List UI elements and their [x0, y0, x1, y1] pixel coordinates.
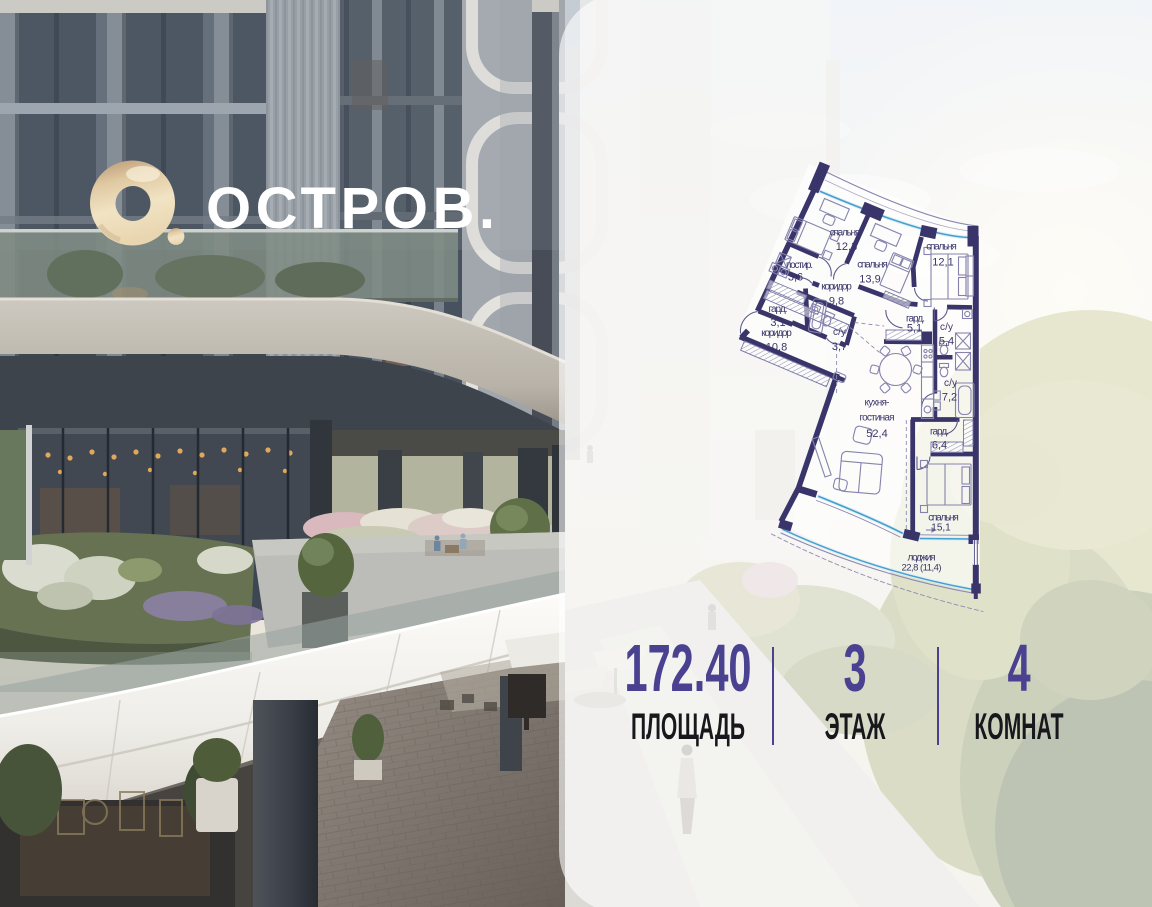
- svg-text:с/у: с/у: [940, 322, 953, 333]
- svg-text:гард.: гард.: [930, 427, 949, 438]
- svg-text:52,4: 52,4: [866, 428, 887, 440]
- svg-text:9,8: 9,8: [829, 296, 844, 308]
- svg-text:гостиная: гостиная: [860, 413, 895, 424]
- svg-text:3,6: 3,6: [788, 272, 803, 284]
- svg-text:10,8: 10,8: [766, 342, 787, 354]
- svg-text:7,2: 7,2: [942, 392, 957, 404]
- svg-text:22,8 (11,4): 22,8 (11,4): [902, 563, 942, 574]
- svg-text:3,7: 3,7: [832, 341, 847, 353]
- svg-text:спальня: спальня: [830, 228, 861, 239]
- svg-text:13,9: 13,9: [859, 274, 880, 286]
- svg-text:спальня: спальня: [857, 260, 888, 271]
- svg-text:6,4: 6,4: [932, 440, 947, 452]
- svg-text:12,1: 12,1: [932, 257, 953, 269]
- svg-text:5,1: 5,1: [907, 323, 922, 335]
- svg-text:спальня: спальня: [926, 242, 957, 253]
- svg-text:коридор: коридор: [821, 282, 852, 293]
- svg-text:12,3: 12,3: [836, 241, 857, 253]
- svg-text:ОСТРОВ.: ОСТРОВ.: [206, 176, 500, 241]
- svg-text:постир.: постир.: [786, 260, 813, 271]
- svg-text:с/у: с/у: [833, 327, 846, 338]
- svg-text:5,4: 5,4: [939, 336, 954, 348]
- svg-text:с/у: с/у: [944, 378, 957, 389]
- svg-text:15,1: 15,1: [931, 523, 951, 534]
- svg-text:коридор: коридор: [761, 328, 792, 339]
- svg-text:кухня-: кухня-: [865, 398, 890, 409]
- svg-text:гард.: гард.: [769, 304, 788, 315]
